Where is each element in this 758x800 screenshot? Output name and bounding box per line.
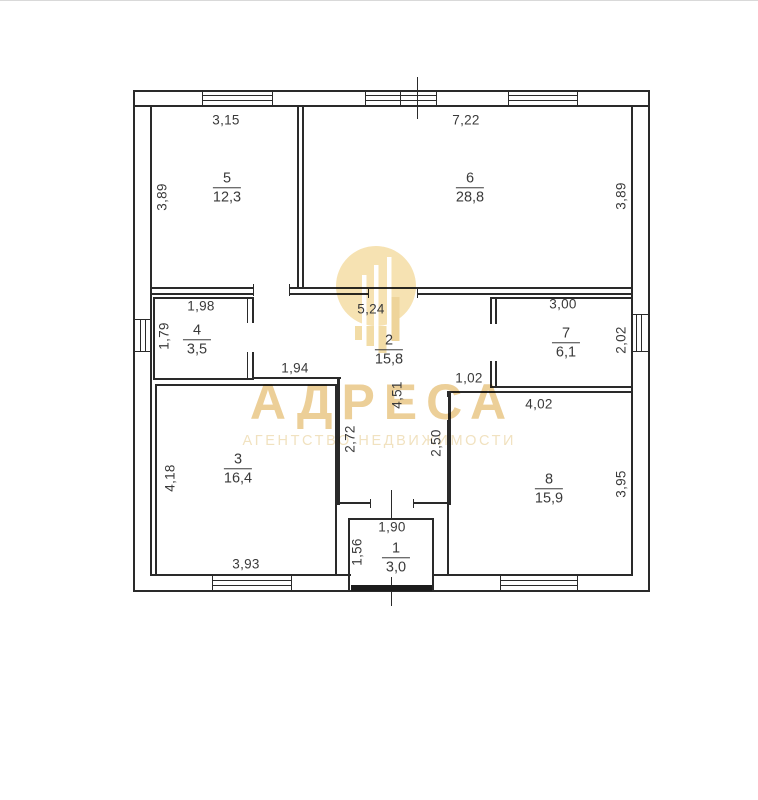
room-2-label: 2 15,8: [375, 332, 403, 367]
wall-segment: [153, 378, 254, 380]
wall-segment: [490, 386, 631, 388]
dim-room2-width: 5,24: [357, 302, 384, 317]
wall-tick: [368, 289, 369, 298]
dim-room6-width: 7,22: [452, 113, 479, 128]
room-area: 12,3: [213, 189, 241, 206]
window-line: [500, 580, 578, 581]
dim-room1-height: 1,56: [350, 538, 365, 565]
wall-tick: [417, 289, 418, 298]
room-6-label: 6 28,8: [456, 170, 484, 205]
wall-tick: [413, 499, 414, 508]
dim-room8-width: 4,02: [525, 397, 552, 412]
room-area: 15,9: [535, 490, 563, 507]
wall-segment: [490, 297, 492, 324]
floor-plan: АДРЕСА АГЕНТСТВО НЕДВИЖИМОСТИ 5 12,3 6 2…: [0, 1, 758, 800]
floor-plan-page: АДРЕСА АГЕНТСТВО НЕДВИЖИМОСТИ 5 12,3 6 2…: [0, 0, 758, 800]
dim-room7-height: 2,02: [614, 326, 629, 353]
wall-tick: [370, 499, 371, 508]
dim-room1-width: 1,90: [378, 520, 405, 535]
dim-corridor-height: 4,51: [390, 381, 405, 408]
wall-segment: [495, 297, 497, 324]
window-line: [202, 90, 203, 106]
window-line: [212, 580, 292, 581]
dim-corridor-right-height: 2,50: [429, 429, 444, 456]
wall-segment: [150, 105, 152, 576]
dim-corridor-right: 1,02: [455, 371, 482, 386]
window-line: [365, 90, 366, 106]
wall-segment: [340, 502, 370, 505]
dim-room6-height: 3,89: [614, 182, 629, 209]
window-line: [145, 319, 146, 352]
window-line: [140, 319, 141, 352]
wall-segment: [631, 105, 633, 576]
wall-segment: [153, 297, 155, 380]
room-number: 2: [375, 332, 403, 350]
dim-corridor-left: 1,94: [281, 361, 308, 376]
axis-line: [391, 577, 392, 606]
wall-segment: [290, 287, 633, 289]
window-line: [202, 95, 273, 96]
wall-segment: [335, 384, 337, 575]
wall-segment: [133, 90, 135, 592]
wall-segment: [247, 352, 249, 380]
window-line: [508, 95, 578, 96]
dim-room4-height: 1,79: [157, 322, 172, 349]
wall-segment: [447, 391, 449, 397]
room-area: 6,1: [556, 344, 576, 361]
axis-line: [417, 77, 418, 119]
wall-segment: [302, 106, 304, 287]
room-area: 15,8: [375, 351, 403, 368]
window-line: [212, 585, 292, 586]
window-line: [500, 574, 501, 590]
wall-segment: [150, 293, 253, 295]
room-7-label: 7 6,1: [552, 325, 580, 360]
window-line: [577, 574, 578, 590]
dim-room3-width: 3,93: [232, 557, 259, 572]
wall-segment: [247, 297, 249, 323]
entrance-door: [351, 585, 432, 591]
room-area: 16,4: [224, 470, 252, 487]
wall-segment: [290, 293, 368, 295]
wall-segment: [418, 293, 633, 295]
window-line: [202, 100, 273, 101]
wall-segment: [337, 378, 340, 505]
wall-segment: [297, 106, 299, 287]
room-number: 5: [213, 170, 241, 188]
wall-segment: [495, 361, 497, 388]
wall-segment: [133, 90, 650, 92]
window-line: [508, 100, 578, 101]
wall-tick: [253, 284, 254, 296]
wall-segment: [252, 297, 254, 323]
watermark: АДРЕСА АГЕНТСТВО НЕДВИЖИМОСТИ: [0, 1, 758, 800]
room-number: 1: [382, 540, 410, 558]
dim-room3-height: 4,18: [163, 464, 178, 491]
dim-corridor-left-height: 2,72: [343, 425, 358, 452]
dim-room5-width: 3,15: [212, 113, 239, 128]
wall-segment: [155, 384, 337, 386]
dim-room5-height: 3,89: [155, 183, 170, 210]
wall-segment: [253, 377, 341, 380]
window-line: [291, 574, 292, 590]
wall-segment: [150, 287, 253, 289]
room-area: 3,0: [386, 559, 406, 576]
wall-segment: [447, 420, 449, 576]
window-line: [631, 314, 648, 315]
room-number: 7: [552, 325, 580, 343]
wall-segment: [648, 90, 650, 592]
room-area: 28,8: [456, 189, 484, 206]
room-number: 6: [456, 170, 484, 188]
room-area: 3,5: [187, 341, 207, 358]
window-line: [135, 319, 150, 320]
room-8-label: 8 15,9: [535, 471, 563, 506]
wall-tick: [289, 284, 290, 296]
window-line: [508, 90, 509, 106]
wall-segment: [414, 502, 451, 505]
window-line: [272, 90, 273, 106]
wall-segment: [155, 384, 157, 575]
window-line: [636, 314, 637, 352]
dim-room7-width: 3,00: [549, 297, 576, 312]
wall-segment: [432, 518, 434, 590]
room-number: 3: [224, 451, 252, 469]
wall-segment: [447, 391, 632, 393]
wall-segment: [432, 574, 632, 576]
window-line: [212, 574, 213, 590]
room-number: 8: [535, 471, 563, 489]
wall-segment: [490, 361, 492, 388]
dim-room8-height: 3,95: [614, 470, 629, 497]
dim-room4-width: 1,98: [187, 299, 214, 314]
window-line: [135, 351, 150, 352]
window-line: [500, 585, 578, 586]
room-3-label: 3 16,4: [224, 451, 252, 486]
window-line: [631, 351, 648, 352]
wall-segment: [150, 574, 351, 576]
wall-segment: [133, 105, 650, 107]
window-line: [577, 90, 578, 106]
room-number: 4: [183, 322, 211, 340]
window-line: [400, 90, 401, 106]
axis-line: [391, 490, 392, 519]
room-1-label: 1 3,0: [382, 540, 410, 575]
watermark-subtitle: АГЕНТСТВО НЕДВИЖИМОСТИ: [240, 433, 516, 449]
window-line: [641, 314, 642, 352]
window-line: [436, 90, 437, 106]
room-5-label: 5 12,3: [213, 170, 241, 205]
room-4-label: 4 3,5: [183, 322, 211, 357]
